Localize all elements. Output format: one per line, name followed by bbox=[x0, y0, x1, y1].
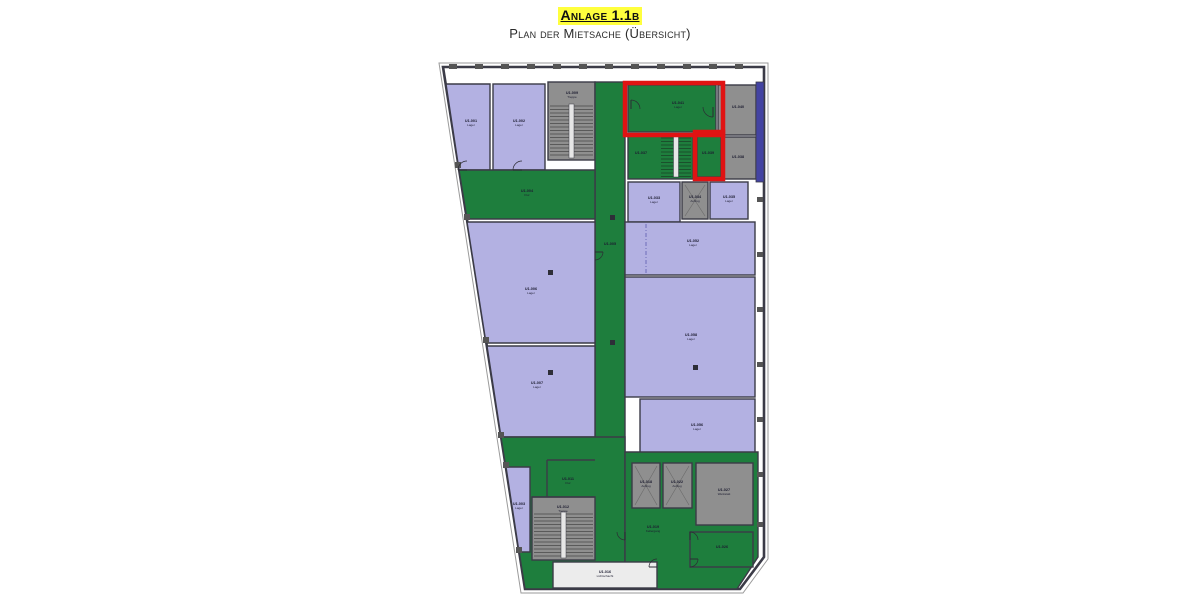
room-u1016-sublabel: Lichtschacht bbox=[597, 574, 614, 578]
room-u1033-sublabel: Lager bbox=[650, 200, 658, 204]
room-u1038-label: U1.038 bbox=[732, 155, 744, 159]
room-u1056-sublabel: Lager bbox=[693, 427, 701, 431]
facade-tick bbox=[449, 64, 457, 69]
floor-plan: U1.001LagerU1.002LagerU1.009TreppeU1.005… bbox=[435, 62, 770, 597]
room-u1019-sublabel: Kellergang bbox=[646, 529, 661, 533]
column bbox=[610, 340, 615, 345]
facade-tick bbox=[709, 64, 717, 69]
room-u1006-sublabel: Lager bbox=[527, 291, 535, 295]
room-u1058-sublabel: Lager bbox=[687, 337, 695, 341]
room-u1022-sublabel: Aufzug bbox=[672, 484, 682, 488]
room-u1002-sublabel: Lager bbox=[515, 123, 523, 127]
room-u1037-label: U1.037 bbox=[635, 151, 647, 155]
stair-landing bbox=[569, 104, 574, 158]
facade-tick bbox=[483, 337, 489, 343]
facade-tick bbox=[735, 64, 743, 69]
column bbox=[548, 270, 553, 275]
room-u1035-sublabel: Lager bbox=[725, 199, 733, 203]
facade-tick bbox=[455, 162, 461, 168]
facade-tick bbox=[757, 197, 763, 202]
room-u1034-sublabel: Aufzug bbox=[690, 199, 700, 203]
room-u1005-label: U1.005 bbox=[604, 242, 616, 246]
stair-landing bbox=[674, 136, 679, 177]
facade-tick bbox=[605, 64, 613, 69]
facade-tick bbox=[631, 64, 639, 69]
facade-tick bbox=[527, 64, 535, 69]
room-u1026-label: U1.026 bbox=[716, 545, 728, 549]
room-u1040-label: U1.040 bbox=[732, 105, 744, 109]
page-subtitle: Plan der Mietsache (Übersicht) bbox=[0, 26, 1200, 42]
plan-header: Anlage 1.1b Plan der Mietsache (Übersich… bbox=[0, 6, 1200, 42]
facade-tick bbox=[657, 64, 665, 69]
shaft-strip bbox=[756, 82, 764, 182]
facade-tick bbox=[501, 64, 509, 69]
facade-tick bbox=[553, 64, 561, 69]
room-u1007-sublabel: Lager bbox=[533, 385, 541, 389]
facade-tick bbox=[683, 64, 691, 69]
room-u1009-sublabel: Treppe bbox=[567, 95, 577, 99]
room-u1027-sublabel: Werkstatt bbox=[718, 492, 731, 496]
facade-tick bbox=[464, 214, 470, 220]
room-u1041-sublabel: Lager bbox=[674, 105, 682, 109]
room-u1037 bbox=[628, 134, 693, 179]
room-u1004-sublabel: Flur bbox=[524, 193, 529, 197]
facade-tick bbox=[757, 307, 763, 312]
column bbox=[693, 365, 698, 370]
column bbox=[548, 370, 553, 375]
facade-tick bbox=[516, 547, 522, 553]
column bbox=[610, 215, 615, 220]
stair-landing bbox=[561, 512, 566, 558]
room-u1026 bbox=[690, 532, 753, 567]
room-u1011-sublabel: Flur bbox=[565, 481, 570, 485]
floor-plan-svg: U1.001LagerU1.002LagerU1.009TreppeU1.005… bbox=[435, 62, 770, 597]
facade-tick bbox=[757, 252, 763, 257]
facade-tick bbox=[503, 462, 509, 468]
facade-tick bbox=[757, 472, 763, 477]
page-title: Anlage 1.1b bbox=[558, 7, 643, 25]
room-u1052 bbox=[625, 222, 755, 275]
room-u1006 bbox=[467, 222, 595, 343]
room-u1001-sublabel: Lager bbox=[467, 123, 475, 127]
facade-tick bbox=[757, 362, 763, 367]
facade-tick bbox=[579, 64, 587, 69]
room-u1003-sublabel: Lager bbox=[515, 506, 523, 510]
facade-tick bbox=[757, 522, 763, 527]
room-u1052-sublabel: Lager bbox=[689, 243, 697, 247]
facade-tick bbox=[498, 432, 504, 438]
room-u1039-label: U1.039 bbox=[702, 151, 714, 155]
room-u1007 bbox=[487, 346, 595, 437]
facade-tick bbox=[475, 64, 483, 69]
room-u1018-sublabel: Aufzug bbox=[641, 484, 651, 488]
room-u1039 bbox=[697, 134, 721, 177]
facade-tick bbox=[757, 417, 763, 422]
room-u1012-sublabel: Treppe bbox=[558, 509, 568, 513]
